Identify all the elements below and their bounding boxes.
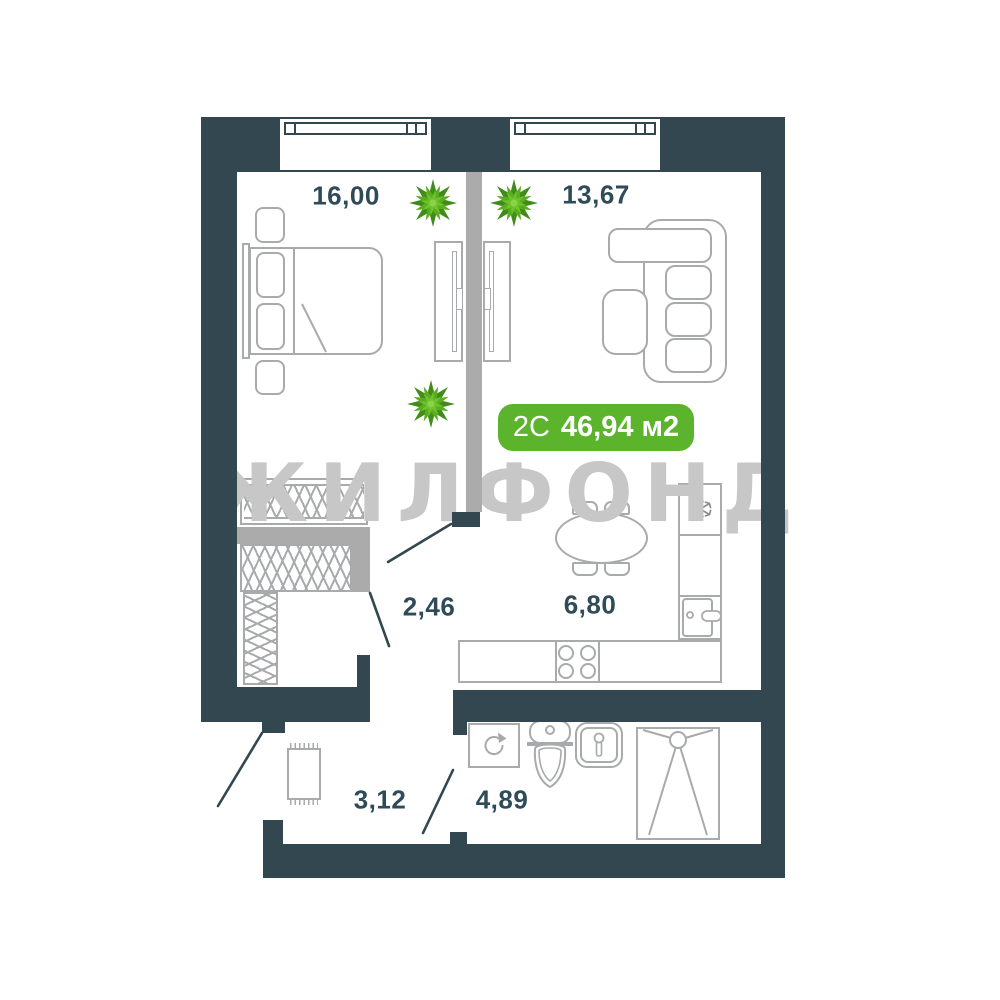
badge-area: 46,94 м2 <box>561 411 679 444</box>
bedroom-door-swing <box>388 524 451 562</box>
room-area-label-kitchen: 6,80 <box>564 590 617 621</box>
door-swings <box>0 0 1000 1000</box>
room-area-label-corridor: 3,12 <box>354 785 407 816</box>
floor-plan: ЖИЛФОНД 16,00 13,67 2,46 6,80 3,12 4,89 <box>0 0 1000 1000</box>
bathroom-door-swing <box>423 770 453 833</box>
entry-door-swing <box>218 733 262 806</box>
badge-layout-type: 2С <box>513 411 550 444</box>
room-area-label-bedroom: 16,00 <box>312 181 380 212</box>
apartment-badge: 2С 46,94 м2 <box>498 404 694 451</box>
room-area-label-hall: 2,46 <box>403 592 456 623</box>
closet-door-swing <box>370 593 389 646</box>
room-area-label-living: 13,67 <box>562 180 630 211</box>
room-area-label-bathroom: 4,89 <box>476 785 529 816</box>
